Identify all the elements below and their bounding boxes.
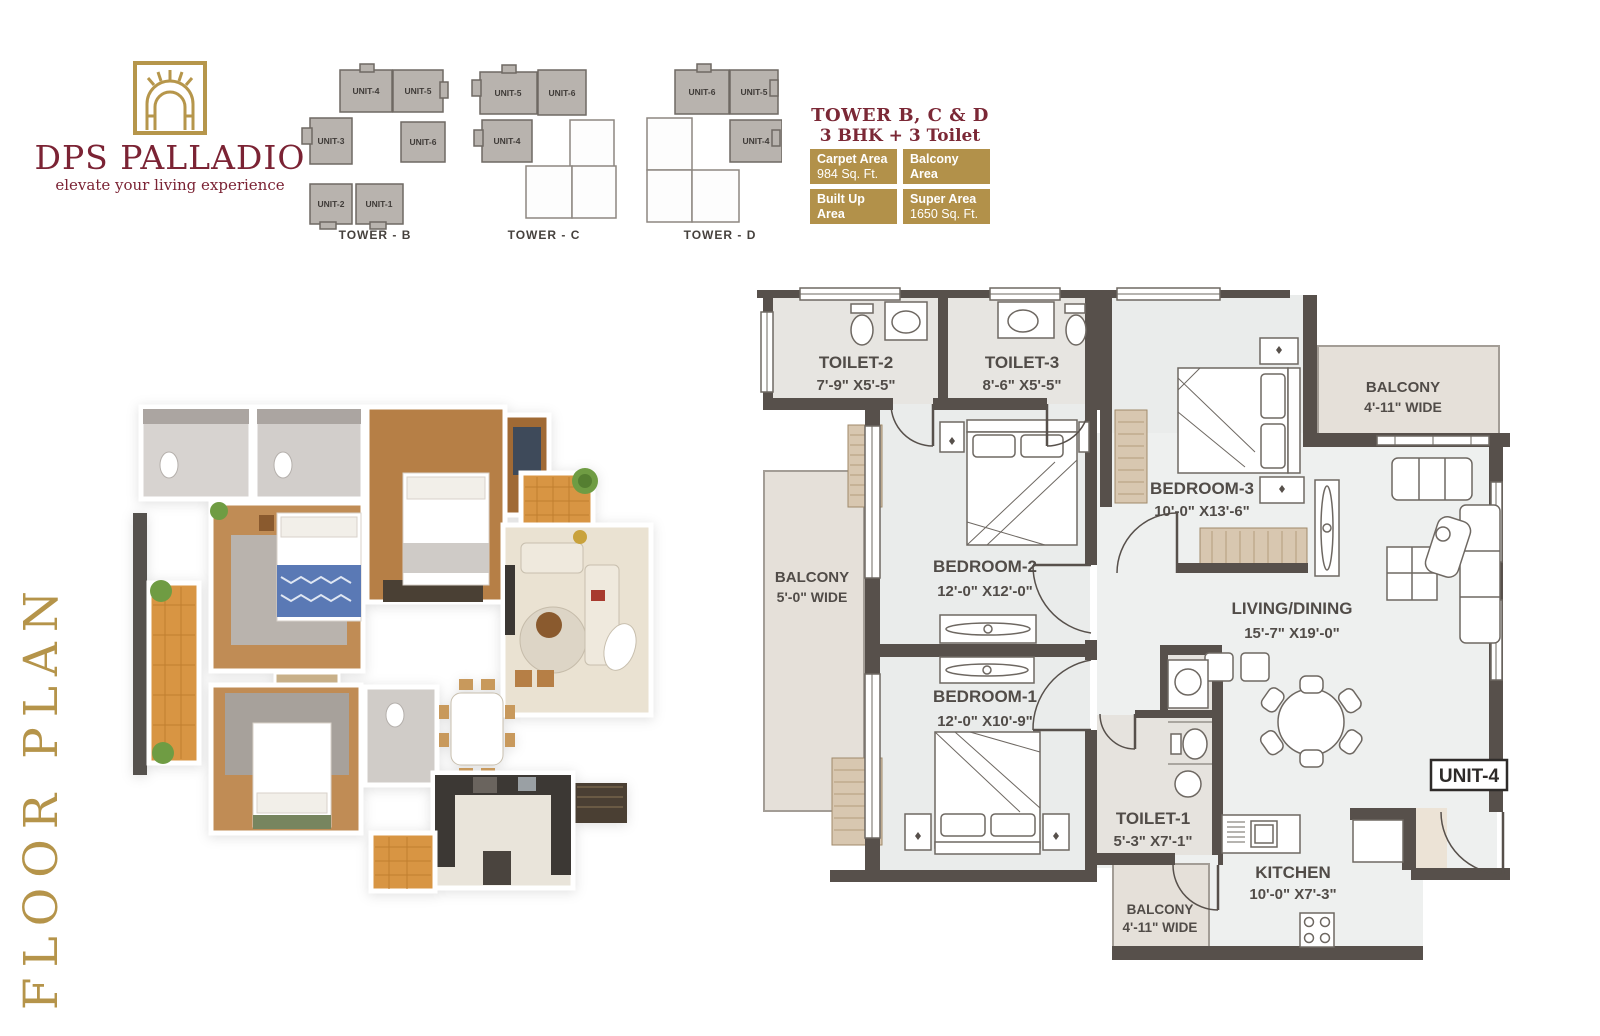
label-bedroom2: BEDROOM-2 bbox=[933, 557, 1037, 576]
keyplan-b-unit5: UNIT-5 bbox=[405, 86, 432, 96]
builtup-area-label: Built Up Area bbox=[817, 192, 890, 222]
page-title: FLOOR PLAN bbox=[4, 566, 78, 1026]
label-balcony-topright-dim: 4'-11" WIDE bbox=[1364, 399, 1442, 415]
builtup-area-value: 1232 Sq. Ft. bbox=[817, 222, 890, 236]
super-area-box: Super Area 1650 Sq. Ft. bbox=[903, 189, 990, 224]
label-living-dining: LIVING/DINING bbox=[1232, 599, 1353, 618]
balcony-area-label: Balcony Area bbox=[910, 152, 983, 182]
brand-tagline: elevate your living experience bbox=[30, 176, 310, 194]
unit-info-title: TOWER B, C & D bbox=[802, 105, 998, 126]
keyplan-d-unit4: UNIT-4 bbox=[743, 136, 770, 146]
label-toilet3: TOILET-3 bbox=[985, 353, 1059, 372]
brand-arch-icon bbox=[132, 60, 208, 136]
area-info-grid: Carpet Area 984 Sq. Ft. Balcony Area 149… bbox=[810, 149, 990, 224]
carpet-area-box: Carpet Area 984 Sq. Ft. bbox=[810, 149, 897, 184]
unit-info-subtitle: 3 BHK + 3 Toilet bbox=[802, 126, 998, 146]
label-balcony-left-dim: 5'-0" WIDE bbox=[777, 589, 848, 605]
floor-plan-2d: TOILET-2 7'-9" X5'-5" TOILET-3 8'-6" X5'… bbox=[755, 282, 1510, 965]
keyplan-b-unit1: UNIT-1 bbox=[366, 199, 393, 209]
label-toilet2: TOILET-2 bbox=[819, 353, 893, 372]
label-balcony-topright: BALCONY bbox=[1366, 379, 1440, 396]
label-kitchen-dim: 10'-0" X7'-3" bbox=[1249, 886, 1336, 903]
keyplan-d-unit6: UNIT-6 bbox=[689, 87, 716, 97]
label-toilet2-dim: 7'-9" X5'-5" bbox=[817, 377, 896, 394]
label-toilet1: TOILET-1 bbox=[1116, 809, 1190, 828]
builtup-area-box: Built Up Area 1232 Sq. Ft. bbox=[810, 189, 897, 224]
label-balcony-left: BALCONY bbox=[775, 569, 849, 586]
floor-plan-page: DPS PALLADIO elevate your living experie… bbox=[0, 0, 1600, 1036]
keyplan-b-unit2: UNIT-2 bbox=[318, 199, 345, 209]
label-bedroom3: BEDROOM-3 bbox=[1150, 479, 1254, 498]
label-toilet1-dim: 5'-3" X7'-1" bbox=[1114, 833, 1193, 850]
super-area-label: Super Area bbox=[910, 192, 983, 207]
label-balcony-bottom-dim: 4'-11" WIDE bbox=[1123, 920, 1198, 935]
keyplan-b-title: TOWER - B bbox=[339, 228, 412, 242]
carpet-area-value: 984 Sq. Ft. bbox=[817, 167, 890, 181]
balcony-area-box: Balcony Area 149 Sq. Ft. bbox=[903, 149, 990, 184]
keyplan-d-title: TOWER - D bbox=[684, 228, 757, 242]
label-kitchen: KITCHEN bbox=[1255, 863, 1331, 882]
keyplan-tower-c: UNIT-5 UNIT-6 UNIT-4 TOWER - C bbox=[462, 58, 622, 248]
label-balcony-bottom: BALCONY bbox=[1127, 902, 1194, 917]
label-bedroom2-dim: 12'-0" X12'-0" bbox=[937, 583, 1033, 600]
label-bedroom1: BEDROOM-1 bbox=[933, 687, 1037, 706]
keyplan-b-unit4: UNIT-4 bbox=[353, 86, 380, 96]
keyplan-tower-d: UNIT-6 UNIT-5 UNIT-4 TOWER - D bbox=[622, 58, 782, 248]
label-living-dining-dim: 15'-7" X19'-0" bbox=[1244, 625, 1340, 642]
super-area-value: 1650 Sq. Ft. bbox=[910, 207, 983, 221]
brand-name: DPS PALLADIO bbox=[30, 138, 310, 177]
keyplan-tower-b: UNIT-4 UNIT-5 UNIT-3 UNIT-6 UNIT-2 UNIT-… bbox=[300, 58, 460, 248]
keyplan-d-unit5: UNIT-5 bbox=[741, 87, 768, 97]
keyplan-c-unit6: UNIT-6 bbox=[549, 88, 576, 98]
keyplan-c-unit4: UNIT-4 bbox=[494, 136, 521, 146]
keyplan-b-unit6: UNIT-6 bbox=[410, 137, 437, 147]
page-title-text: FLOOR PLAN bbox=[14, 581, 69, 1010]
label-bedroom1-dim: 12'-0" X10'-9" bbox=[937, 713, 1033, 730]
label-bedroom3-dim: 10'-0" X13'-6" bbox=[1154, 503, 1250, 520]
keyplan-c-unit5: UNIT-5 bbox=[495, 88, 522, 98]
render-3d-floor-plan bbox=[133, 385, 691, 895]
keyplan-c-title: TOWER - C bbox=[508, 228, 581, 242]
label-toilet3-dim: 8'-6" X5'-5" bbox=[983, 377, 1062, 394]
keyplan-b-unit3: UNIT-3 bbox=[318, 136, 345, 146]
carpet-area-label: Carpet Area bbox=[817, 152, 890, 167]
unit-label: UNIT-4 bbox=[1439, 766, 1500, 787]
